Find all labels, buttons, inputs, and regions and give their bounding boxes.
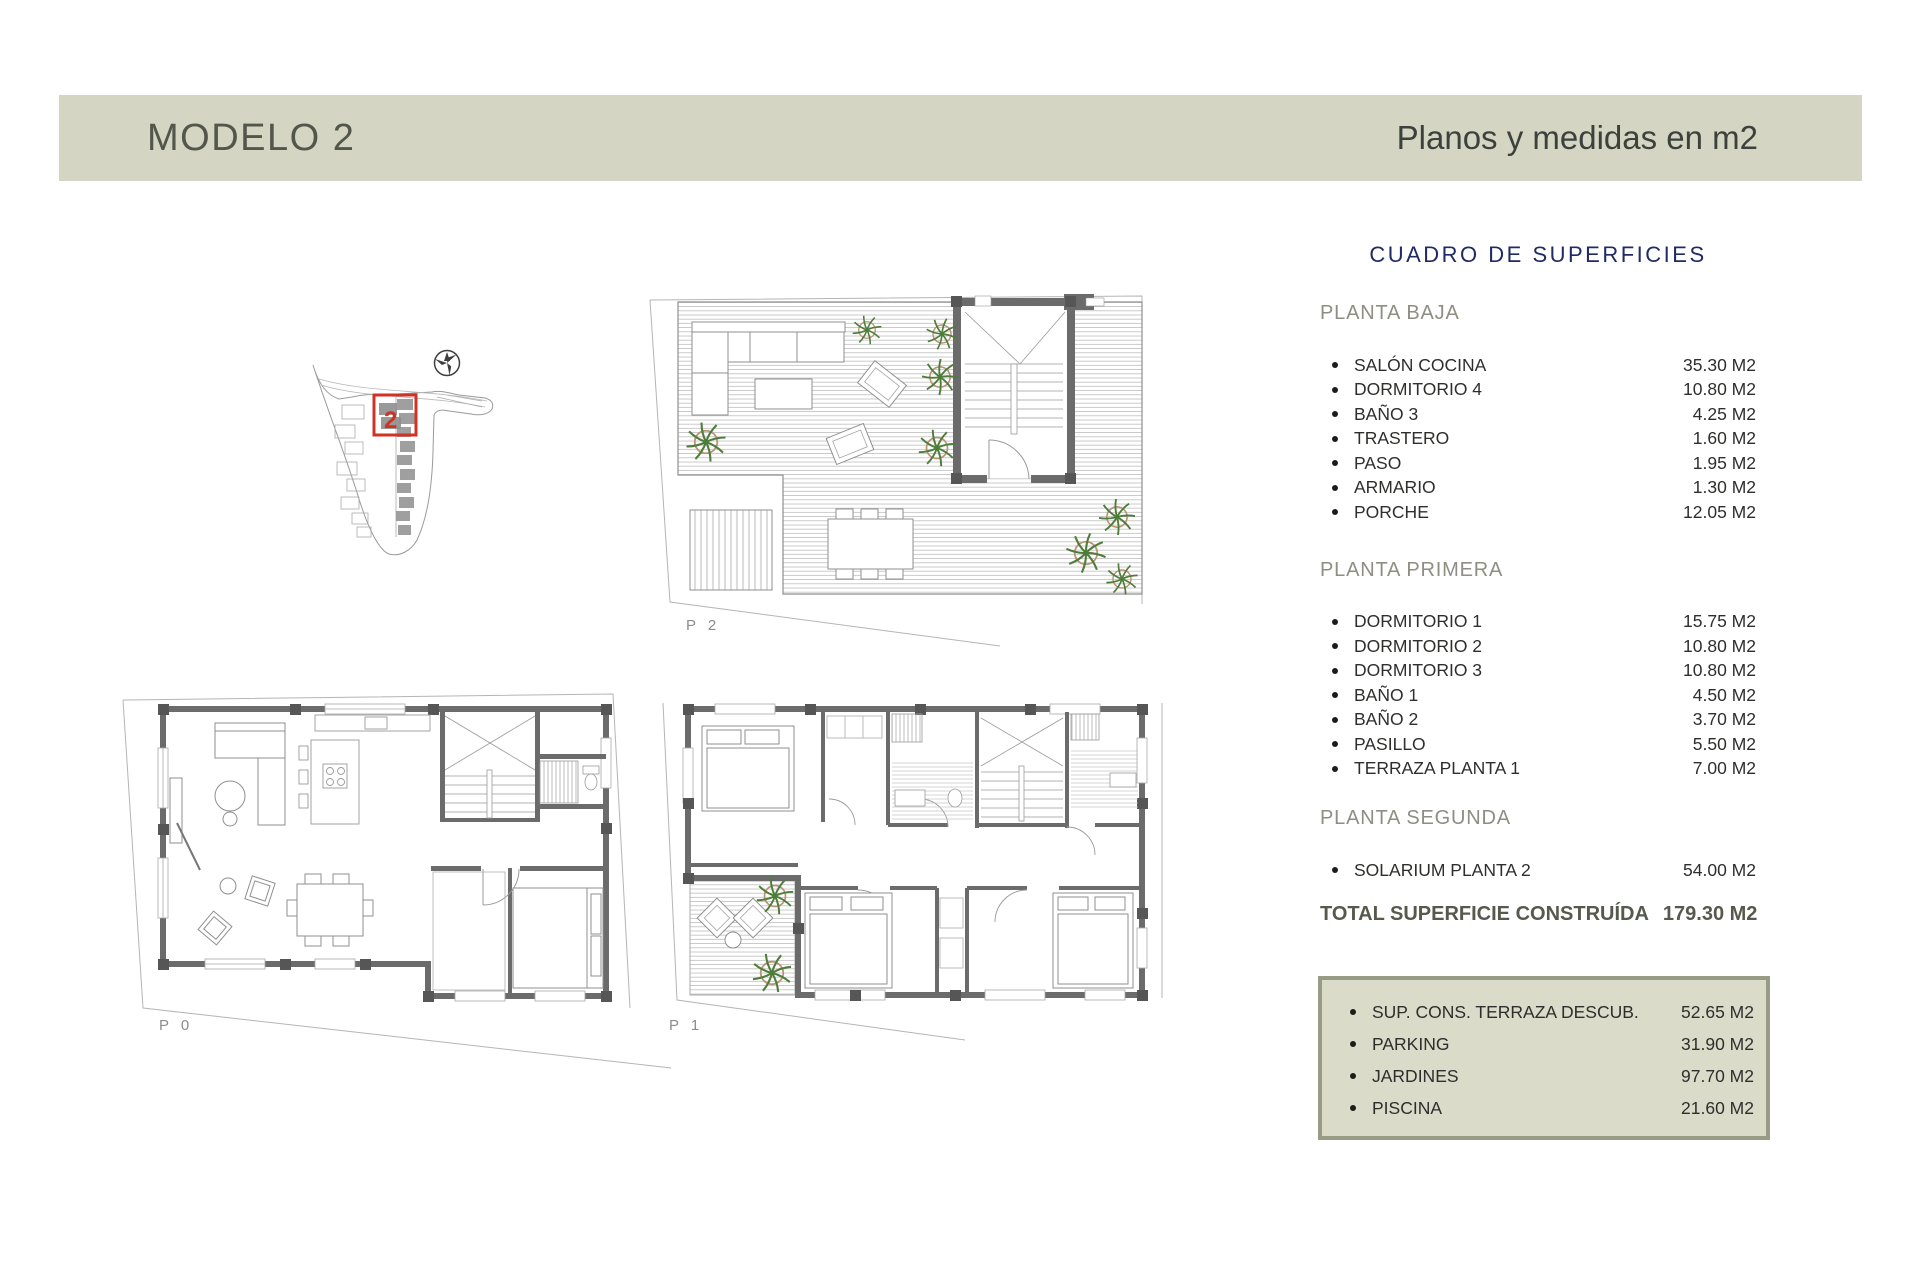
page-subtitle: Planos y medidas en m2	[1397, 119, 1758, 157]
planta-segunda-rows: SOLARIUM PLANTA 254.00 M2	[1320, 858, 1756, 883]
surface-row: DORMITORIO 410.80 M2	[1320, 378, 1756, 403]
surface-value: 4.25 M2	[1693, 404, 1756, 425]
bullet-icon	[1332, 668, 1338, 674]
bullet-icon	[1332, 436, 1338, 442]
surface-row: PASO1.95 M2	[1320, 451, 1756, 476]
surface-value: 35.30 M2	[1683, 355, 1756, 376]
surface-value: 54.00 M2	[1683, 860, 1756, 881]
bullet-icon	[1332, 717, 1338, 723]
total-label: TOTAL SUPERFICIE CONSTRUÍDA	[1320, 903, 1649, 926]
plan-label-p2: P 2	[686, 617, 720, 634]
surface-label: BAÑO 2	[1354, 709, 1693, 730]
bullet-icon	[1332, 509, 1338, 515]
bullet-icon	[1332, 741, 1338, 747]
surface-value: 1.60 M2	[1693, 428, 1756, 449]
surface-row: PARKING31.90 M2	[1324, 1028, 1754, 1060]
site-plan: 2	[297, 337, 507, 572]
surface-row: PISCINA21.60 M2	[1324, 1092, 1754, 1124]
plan-label-p1: P 1	[669, 1017, 703, 1034]
surface-value: 1.30 M2	[1693, 477, 1756, 498]
surface-label: PARKING	[1372, 1034, 1681, 1055]
compass-icon	[435, 351, 460, 376]
kitchen	[299, 715, 430, 824]
surface-label: JARDINES	[1372, 1066, 1681, 1087]
surface-value: 5.50 M2	[1693, 734, 1756, 755]
stairs	[981, 718, 1063, 821]
surface-label: TERRAZA PLANTA 1	[1354, 758, 1693, 779]
planta-primera-rows: DORMITORIO 115.75 M2 DORMITORIO 210.80 M…	[1320, 610, 1756, 782]
surface-label: DORMITORIO 3	[1354, 660, 1683, 681]
section-heading-planta-segunda: PLANTA SEGUNDA	[1320, 807, 1756, 830]
exterior-surfaces-box: SUP. CONS. TERRAZA DESCUB.52.65 M2 PARKI…	[1318, 976, 1770, 1140]
surface-row: DORMITORIO 310.80 M2	[1320, 659, 1756, 684]
bullet-icon	[1332, 766, 1338, 772]
plot-boundary	[123, 694, 671, 1068]
bullet-icon	[1332, 619, 1338, 625]
surface-value: 10.80 M2	[1683, 660, 1756, 681]
bullet-icon	[1350, 1009, 1356, 1015]
bullet-icon	[1332, 411, 1338, 417]
surface-row: BAÑO 14.50 M2	[1320, 683, 1756, 708]
bed	[513, 888, 603, 988]
fireplace-line	[177, 823, 200, 870]
header-bar: MODELO 2 Planos y medidas en m2	[59, 95, 1862, 181]
surface-label: DORMITORIO 2	[1354, 636, 1683, 657]
surface-value: 97.70 M2	[1681, 1066, 1754, 1087]
surface-value: 12.05 M2	[1683, 502, 1756, 523]
section-heading-planta-primera: PLANTA PRIMERA	[1320, 559, 1756, 582]
surface-label: DORMITORIO 1	[1354, 611, 1683, 632]
bullet-icon	[1332, 460, 1338, 466]
surface-row: TERRAZA PLANTA 17.00 M2	[1320, 757, 1756, 782]
surface-value: 31.90 M2	[1681, 1034, 1754, 1055]
surface-label: BAÑO 3	[1354, 404, 1693, 425]
surface-label: TRASTERO	[1354, 428, 1693, 449]
surface-label: ARMARIO	[1354, 477, 1693, 498]
surface-value: 15.75 M2	[1683, 611, 1756, 632]
surface-value: 7.00 M2	[1693, 758, 1756, 779]
surface-label: PASO	[1354, 453, 1693, 474]
bathroom-1	[892, 714, 973, 821]
surface-label: BAÑO 1	[1354, 685, 1693, 706]
floor-plan-p1: P 1	[655, 678, 1215, 1078]
bullet-icon	[1350, 1041, 1356, 1047]
total-line: TOTAL SUPERFICIE CONSTRUÍDA 179.30 M2	[1320, 903, 1756, 926]
bullet-icon	[1332, 362, 1338, 368]
surface-label: DORMITORIO 4	[1354, 379, 1683, 400]
floor-plan-p0: P 0	[115, 678, 675, 1073]
bullet-icon	[1332, 387, 1338, 393]
surface-label: SOLARIUM PLANTA 2	[1354, 860, 1683, 881]
bathroom	[540, 761, 599, 803]
bed-dormitorio-2	[805, 893, 892, 988]
surface-row: PASILLO5.50 M2	[1320, 732, 1756, 757]
outdoor-dining-table	[828, 509, 913, 579]
surfaces-title: CUADRO DE SUPERFICIES	[1320, 242, 1756, 268]
surface-row: BAÑO 23.70 M2	[1320, 708, 1756, 733]
bullet-icon	[1332, 485, 1338, 491]
surface-value: 1.95 M2	[1693, 453, 1756, 474]
surface-value: 10.80 M2	[1683, 636, 1756, 657]
bullet-icon	[1350, 1105, 1356, 1111]
surface-label: SALÓN COCINA	[1354, 355, 1683, 376]
bed-dormitorio-1	[702, 726, 794, 811]
surface-value: 10.80 M2	[1683, 379, 1756, 400]
stairs	[445, 716, 535, 818]
surfaces-table: CUADRO DE SUPERFICIES PLANTA BAJA SALÓN …	[1320, 236, 1756, 926]
planta-baja-rows: SALÓN COCINA35.30 M2 DORMITORIO 410.80 M…	[1320, 353, 1756, 525]
total-value: 179.30 M2	[1663, 903, 1758, 926]
section-heading-planta-baja: PLANTA BAJA	[1320, 302, 1756, 325]
surface-row: DORMITORIO 115.75 M2	[1320, 610, 1756, 635]
surface-label: SUP. CONS. TERRAZA DESCUB.	[1372, 1002, 1681, 1023]
surface-row: TRASTERO1.60 M2	[1320, 427, 1756, 452]
surface-label: PORCHE	[1354, 502, 1683, 523]
surface-row: DORMITORIO 210.80 M2	[1320, 634, 1756, 659]
bullet-icon	[1350, 1073, 1356, 1079]
surface-row: JARDINES97.70 M2	[1324, 1060, 1754, 1092]
plan-label-p0: P 0	[159, 1017, 193, 1034]
bed-dormitorio-3	[1053, 893, 1133, 988]
site-unit-number: 2	[384, 407, 397, 434]
surface-value: 3.70 M2	[1693, 709, 1756, 730]
bullet-icon	[1332, 867, 1338, 873]
surface-row: BAÑO 34.25 M2	[1320, 402, 1756, 427]
surface-value: 52.65 M2	[1681, 1002, 1754, 1023]
porch	[433, 872, 505, 990]
bathroom-2	[1071, 714, 1138, 810]
surface-label: PASILLO	[1354, 734, 1693, 755]
surface-row: SUP. CONS. TERRAZA DESCUB.52.65 M2	[1324, 996, 1754, 1028]
surface-label: PISCINA	[1372, 1098, 1681, 1119]
bullet-icon	[1332, 643, 1338, 649]
surface-row: SOLARIUM PLANTA 254.00 M2	[1320, 858, 1756, 883]
page-title: MODELO 2	[147, 117, 355, 160]
pergola	[690, 510, 772, 590]
surface-row: PORCHE12.05 M2	[1320, 500, 1756, 525]
surface-value: 4.50 M2	[1693, 685, 1756, 706]
bullet-icon	[1332, 692, 1338, 698]
surface-row: ARMARIO1.30 M2	[1320, 476, 1756, 501]
surface-row: SALÓN COCINA35.30 M2	[1320, 353, 1756, 378]
surface-value: 21.60 M2	[1681, 1098, 1754, 1119]
floor-plan-p2: P 2	[640, 272, 1200, 662]
